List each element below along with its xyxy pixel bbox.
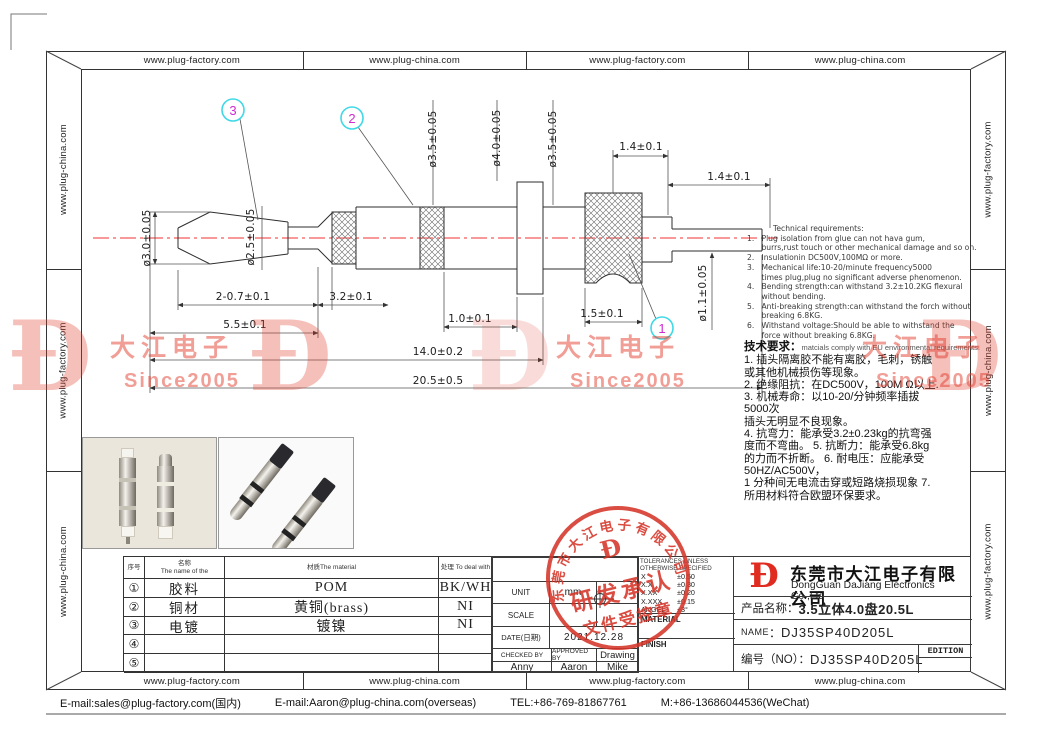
dim-neck-diameter: ø2.5±0.05 — [245, 208, 257, 265]
stamp-logo: Đ — [597, 532, 624, 565]
corner-crop-mark — [11, 14, 47, 50]
dim-len-55: 5.5±0.1 — [223, 319, 267, 331]
balloon-2-number: 2 — [348, 111, 355, 126]
dim-dia-40: ø4.0±0.05 — [491, 109, 503, 166]
tech-req-en-title: Technical requirements: — [747, 224, 989, 234]
dim-len-14b: 1.4±0.1 — [707, 171, 751, 183]
tech-req-cn-title: 技术要求： — [744, 341, 802, 353]
dim-len-205: 20.5±0.5 — [413, 375, 463, 387]
dim-pin-diameter: ø1.1±0.05 — [697, 264, 709, 321]
dim-dia-35a: ø3.5±0.05 — [427, 110, 439, 167]
dim-len-15: 1.5±0.1 — [580, 308, 624, 320]
balloon-1-number: 1 — [658, 321, 665, 336]
dim-len-32: 3.2±0.1 — [329, 291, 373, 303]
dim-len-140: 14.0±0.2 — [413, 346, 463, 358]
dim-len-207: 2-0.7±0.1 — [216, 291, 270, 303]
dim-dia-35b: ø3.5±0.05 — [547, 110, 559, 167]
tech-requirements-en: Technical requirements: 1. Plug isolatio… — [747, 224, 989, 340]
dim-len-14a: 1.4±0.1 — [619, 141, 663, 153]
drawing-sheet: www.plug-factory.com www.plug-china.com … — [0, 0, 1052, 744]
dim-len-10: 1.0±0.1 — [448, 313, 492, 325]
dim-tip-diameter: ø3.0±0.05 — [141, 209, 153, 266]
tech-requirements-cn: 技术要求：matcials comply with EU environment… — [744, 341, 994, 502]
balloon-3-number: 3 — [229, 103, 236, 118]
